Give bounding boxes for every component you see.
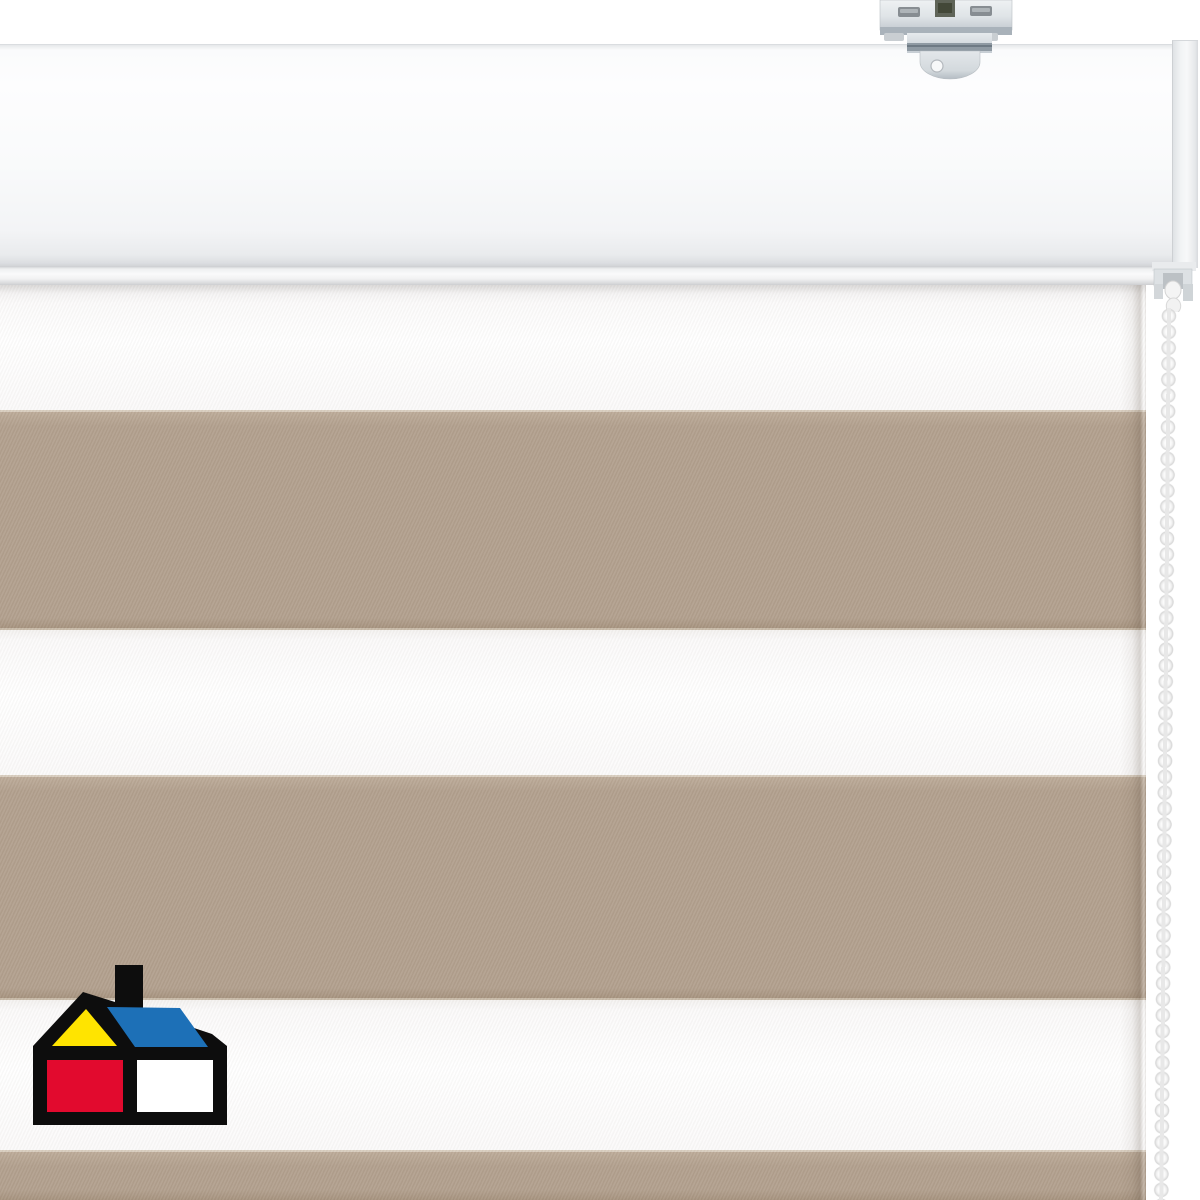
hardware-store-house-logo-icon <box>33 962 227 1128</box>
fabric-stripe-white-2 <box>0 630 1146 775</box>
bead-chain <box>1153 308 1177 1200</box>
headrail-end-cap <box>1172 40 1198 268</box>
fabric-stripe-white-1 <box>0 285 1146 410</box>
mounting-bracket-icon <box>868 0 1020 88</box>
fabric-stripe-beige-3 <box>0 1150 1146 1200</box>
logo-wall-white <box>137 1060 213 1112</box>
chain-mechanism-icon <box>1148 262 1200 312</box>
fabric-stripe-beige-1 <box>0 410 1146 630</box>
product-photo-roller-blind <box>0 0 1200 1200</box>
logo-wall-red <box>47 1060 123 1112</box>
headrail-bottom-lip <box>0 266 1188 285</box>
